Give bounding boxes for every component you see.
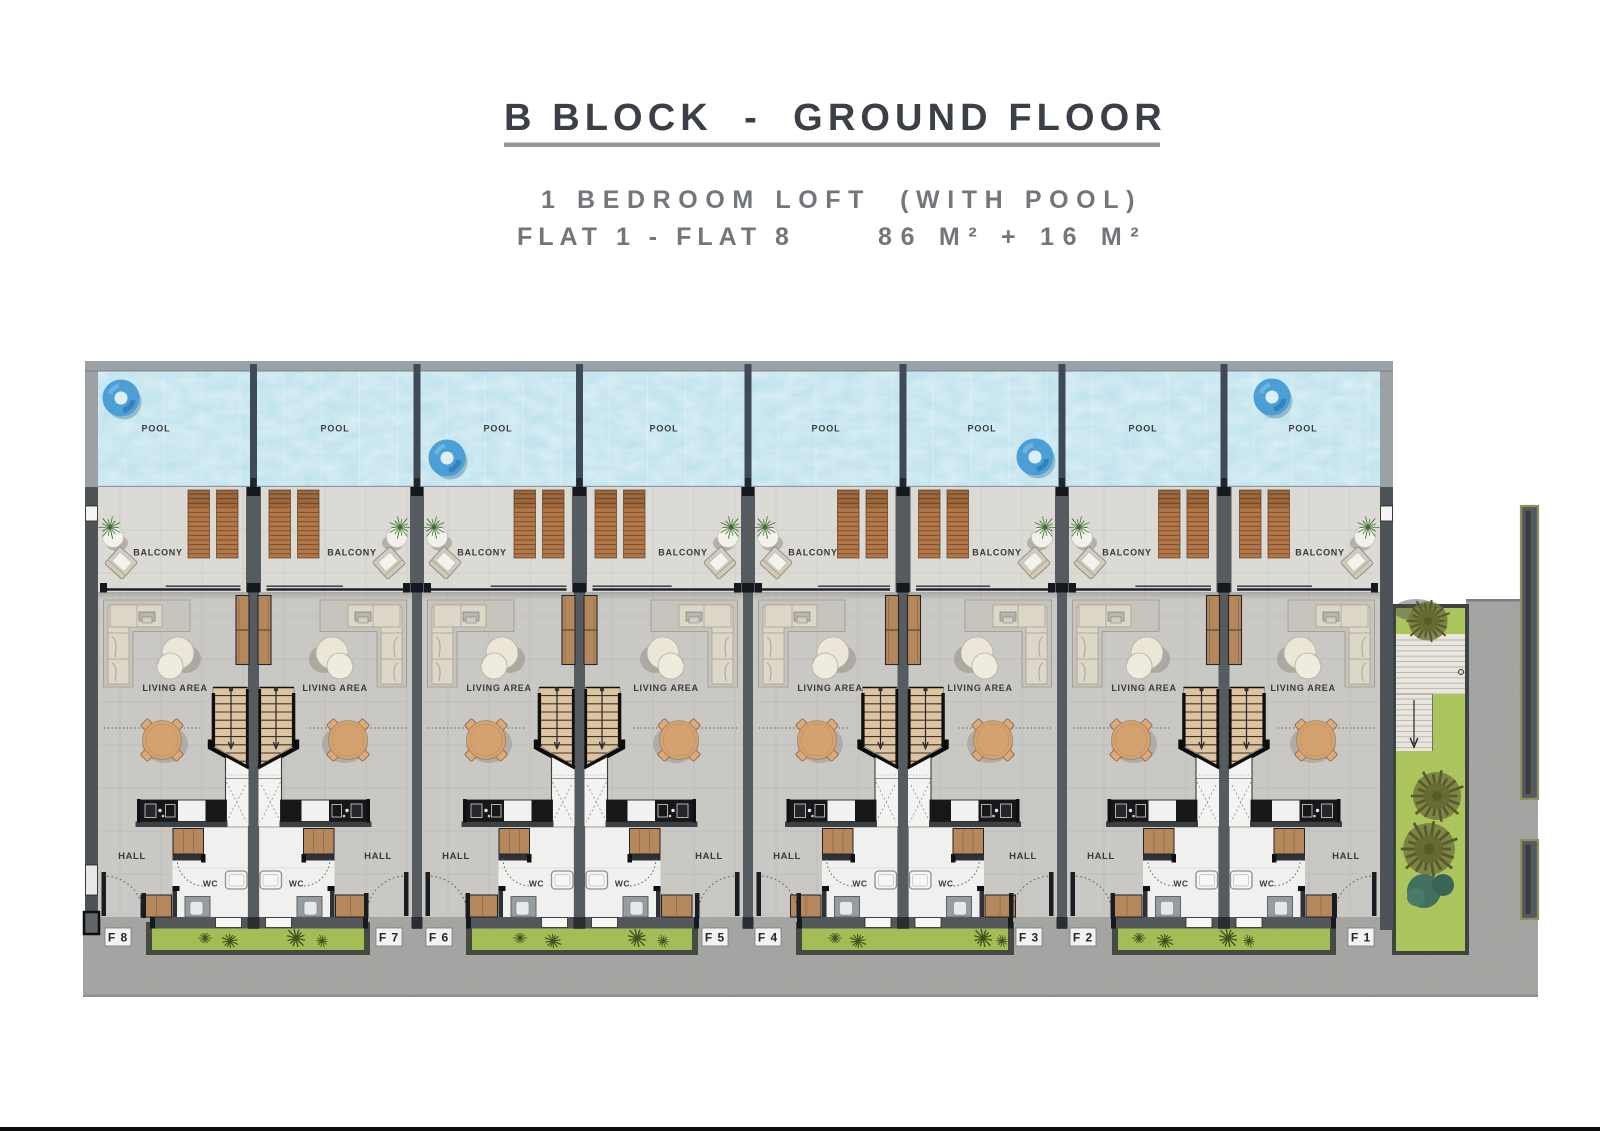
svg-text:HALL: HALL [1009,851,1037,862]
svg-text:BALCONY: BALCONY [788,548,837,558]
svg-text:F 7: F 7 [379,931,399,945]
svg-text:WC: WC [529,879,544,889]
svg-text:BALCONY: BALCONY [327,548,376,558]
svg-text:WC: WC [615,879,630,889]
svg-text:HALL: HALL [695,851,723,862]
svg-text:LIVING AREA: LIVING AREA [1270,683,1335,693]
svg-text:F 8: F 8 [108,931,128,945]
svg-text:POOL: POOL [1128,424,1157,434]
svg-text:86 M² + 16 M²: 86 M² + 16 M² [878,223,1147,251]
svg-text:B BLOCK - GROUND FLOOR: B BLOCK - GROUND FLOOR [504,97,1167,139]
svg-text:F 4: F 4 [758,931,778,945]
svg-text:LIVING AREA: LIVING AREA [797,683,862,693]
svg-text:BALCONY: BALCONY [972,548,1021,558]
svg-text:WC: WC [203,879,218,889]
svg-text:POOL: POOL [649,424,678,434]
svg-text:FLAT 1 - FLAT 8: FLAT 1 - FLAT 8 [517,223,795,251]
svg-text:F 6: F 6 [429,931,449,945]
svg-text:LIVING AREA: LIVING AREA [947,683,1012,693]
svg-text:HALL: HALL [442,851,470,862]
svg-text:HALL: HALL [118,851,146,862]
svg-text:BALCONY: BALCONY [1102,548,1151,558]
svg-text:POOL: POOL [483,424,512,434]
svg-text:BALCONY: BALCONY [133,548,182,558]
svg-text:LIVING AREA: LIVING AREA [1111,683,1176,693]
svg-text:WC: WC [1173,879,1188,889]
svg-text:1 BEDROOM LOFT (WITH POOL): 1 BEDROOM LOFT (WITH POOL) [541,186,1142,214]
svg-text:F 2: F 2 [1073,931,1093,945]
svg-text:WC: WC [938,879,953,889]
svg-text:WC: WC [852,879,867,889]
svg-text:HALL: HALL [1087,851,1115,862]
svg-text:POOL: POOL [1288,424,1317,434]
svg-text:BALCONY: BALCONY [1295,548,1344,558]
svg-text:POOL: POOL [967,424,996,434]
svg-text:LIVING AREA: LIVING AREA [302,683,367,693]
svg-text:BALCONY: BALCONY [658,548,707,558]
svg-text:POOL: POOL [141,424,170,434]
svg-text:WC: WC [1259,879,1274,889]
svg-text:HALL: HALL [773,851,801,862]
svg-text:F 5: F 5 [705,931,725,945]
svg-text:LIVING AREA: LIVING AREA [633,683,698,693]
svg-text:HALL: HALL [364,851,392,862]
svg-text:WC: WC [289,879,304,889]
svg-text:F 1: F 1 [1351,931,1371,945]
svg-text:LIVING AREA: LIVING AREA [466,683,531,693]
svg-text:LIVING AREA: LIVING AREA [142,683,207,693]
svg-text:HALL: HALL [1332,851,1360,862]
svg-text:POOL: POOL [811,424,840,434]
svg-text:POOL: POOL [320,424,349,434]
svg-text:BALCONY: BALCONY [457,548,506,558]
svg-text:F 3: F 3 [1019,931,1039,945]
